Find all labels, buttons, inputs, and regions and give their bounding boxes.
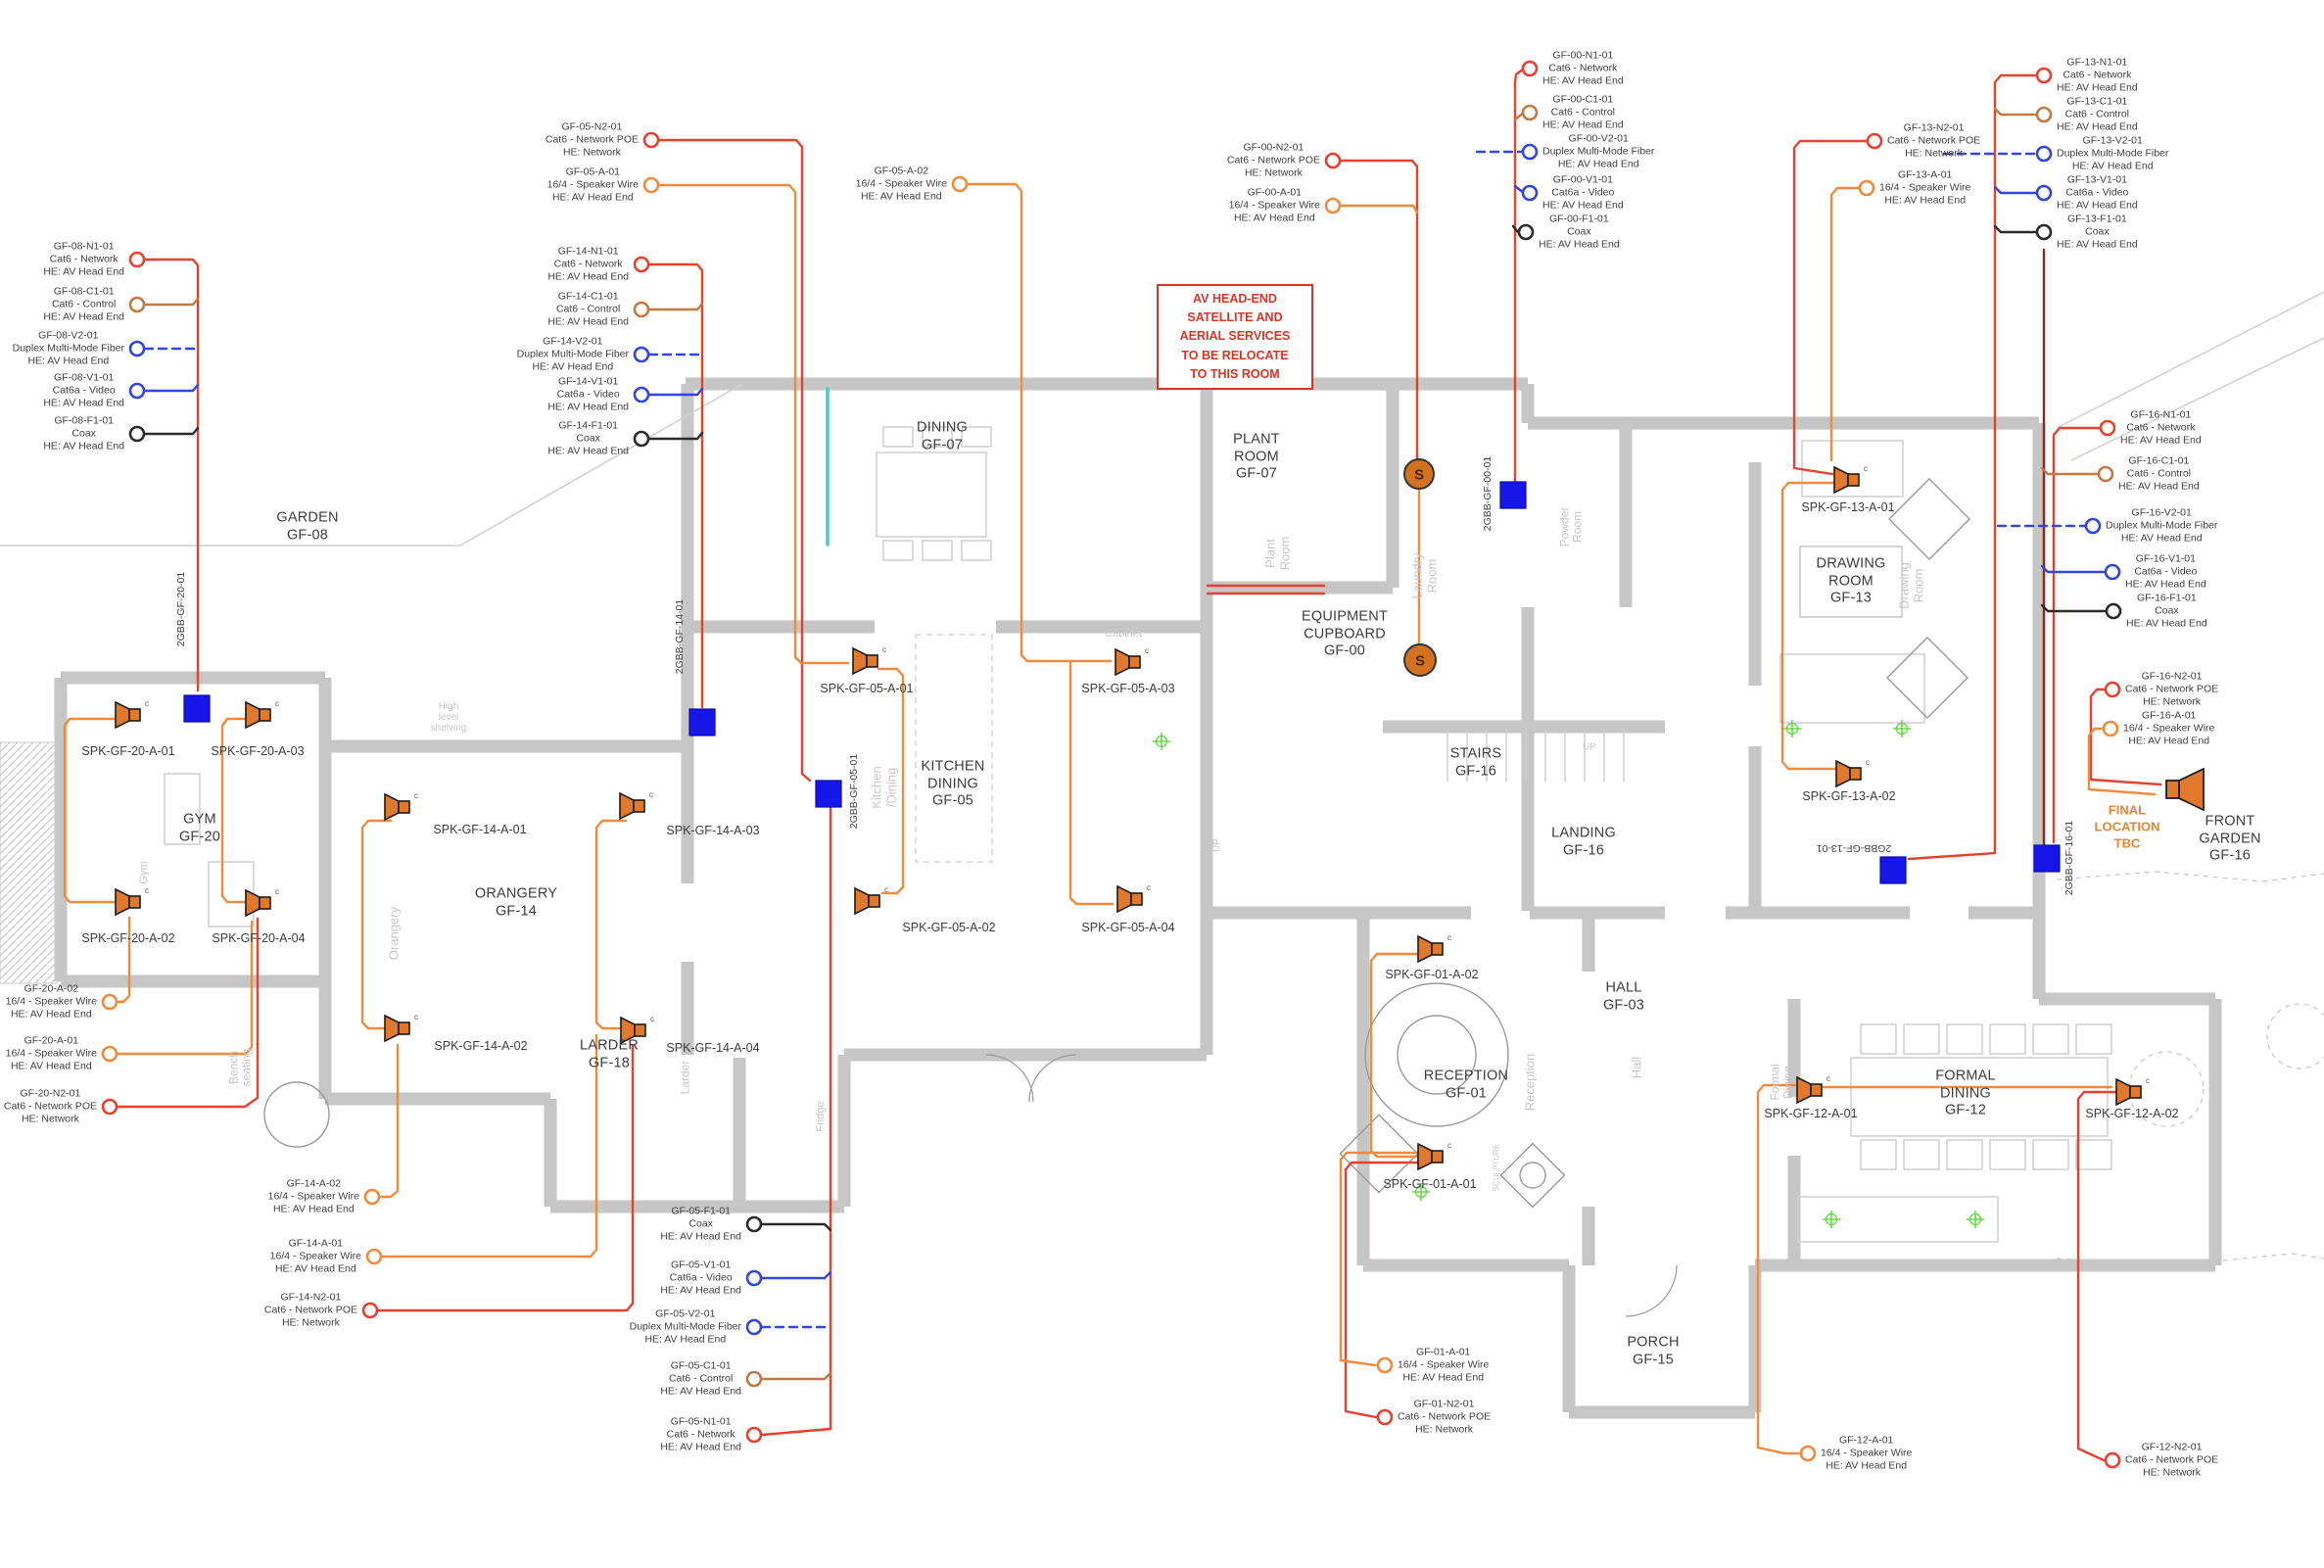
- final-location-note: FINAL LOCATION TBC: [2095, 803, 2160, 853]
- callout-id-text: GF-13-N1-01: [2057, 56, 2138, 69]
- callout-id-text: GF-16-A-01: [2123, 709, 2214, 722]
- callout-he-text: HE: Network: [1227, 167, 1320, 180]
- cable-callout: GF-05-N1-01Cat6 - NetworkHE: AV Head End: [660, 1415, 741, 1453]
- callout-id-text: GF-14-N2-01: [264, 1291, 357, 1304]
- callout-type-text: Cat6 - Control: [43, 298, 124, 310]
- callout-type-text: 16/4 - Speaker Wire: [1821, 1447, 1912, 1459]
- callout-he-text: HE: AV Head End: [1879, 195, 1970, 208]
- room-label: EQUIPMENT CUPBOARD GF-00: [1302, 608, 1388, 660]
- callout-he-text: HE: AV Head End: [1398, 1372, 1489, 1385]
- room-annotation-gray: Plant Room: [1263, 537, 1292, 571]
- room-label: FRONT GARDEN GF-16: [2199, 813, 2260, 865]
- speaker-label: SPK-GF-12-A-01: [1764, 1107, 1857, 1120]
- room-annotation-gray: SCULPTURE: [1494, 1144, 1502, 1191]
- room-annotation-gray: Formal Dining: [1770, 1064, 1796, 1100]
- speaker-label: SPK-GF-14-A-01: [433, 823, 526, 836]
- cable-callout: GF-00-V2-01Duplex Multi-Mode FiberHE: AV…: [1542, 132, 1654, 170]
- room-annotation-gray: Powder Room: [1559, 507, 1586, 547]
- callout-type-text: 16/4 - Speaker Wire: [547, 178, 639, 191]
- callout-type-text: Cat6 - Control: [2118, 467, 2200, 480]
- callout-he-text: HE: Network: [1887, 148, 1980, 161]
- callout-type-text: Cat6 - Control: [2057, 108, 2138, 120]
- room-label: RECEPTION GF-01: [1424, 1068, 1508, 1102]
- room-annotation-gray: Hall: [1631, 1057, 1645, 1078]
- callout-id-text: GF-05-V1-01: [660, 1259, 741, 1271]
- callout-he-text: HE: Network: [2125, 696, 2218, 709]
- callout-he-text: HE: AV Head End: [1542, 159, 1654, 171]
- room-annotation-gray: Gym: [138, 861, 150, 883]
- callout-he-text: HE: AV Head End: [2118, 481, 2200, 494]
- callout-he-text: HE: AV Head End: [2123, 736, 2214, 748]
- cable-callout: GF-13-F1-01CoaxHE: AV Head End: [2057, 213, 2138, 251]
- callout-id-text: GF-13-C1-01: [2057, 95, 2138, 108]
- cable-callout: GF-13-C1-01Cat6 - ControlHE: AV Head End: [2057, 95, 2138, 133]
- cable-callout: GF-14-F1-01CoaxHE: AV Head End: [547, 419, 629, 457]
- callout-id-text: GF-14-A-01: [270, 1237, 361, 1250]
- callout-he-text: HE: AV Head End: [2125, 579, 2206, 592]
- callout-type-text: 16/4 - Speaker Wire: [6, 995, 97, 1008]
- cable-callout: GF-14-N1-01Cat6 - NetworkHE: AV Head End: [547, 245, 629, 283]
- callout-id-text: GF-00-N2-01: [1227, 141, 1320, 154]
- callout-id-text: GF-16-F1-01: [2126, 592, 2207, 604]
- cable-callout: GF-05-V2-01Duplex Multi-Mode FiberHE: AV…: [630, 1307, 741, 1346]
- callout-he-text: HE: AV Head End: [2057, 239, 2138, 252]
- room-label: DRAWING ROOM GF-13: [1800, 546, 1903, 617]
- cable-callout: GF-16-F1-01CoaxHE: AV Head End: [2126, 592, 2207, 630]
- callout-type-text: Cat6a - Video: [1542, 186, 1624, 199]
- cable-callout: GF-01-N2-01Cat6 - Network POEHE: Network: [1398, 1398, 1491, 1436]
- wall-box-label: 2GBB-GF-05-01: [848, 754, 860, 829]
- callout-he-text: HE: AV Head End: [1821, 1460, 1912, 1473]
- callout-id-text: GF-08-V1-01: [43, 371, 124, 384]
- speaker-label: SPK-GF-05-A-03: [1081, 682, 1174, 695]
- callout-he-text: HE: AV Head End: [2057, 121, 2138, 134]
- callout-he-text: HE: AV Head End: [547, 271, 629, 284]
- callout-type-text: Cat6 - Network POE: [4, 1100, 97, 1113]
- speaker-label: SPK-GF-13-A-02: [1802, 789, 1895, 803]
- callout-he-text: HE: AV Head End: [268, 1204, 359, 1216]
- callout-he-text: HE: Network: [545, 147, 639, 160]
- cable-callout: GF-20-A-0216/4 - Speaker WireHE: AV Head…: [6, 982, 97, 1021]
- callout-type-text: Cat6 - Network: [660, 1428, 741, 1441]
- callout-he-text: HE: AV Head End: [43, 311, 124, 324]
- floor-plan-labels-layer: GARDEN GF-08GYM GF-20ORANGERY GF-14DININ…: [0, 0, 2324, 1568]
- callout-type-text: 16/4 - Speaker Wire: [1229, 199, 1320, 212]
- room-label: LANDING GF-16: [1551, 825, 1616, 859]
- cable-callout: GF-20-N2-01Cat6 - Network POEHE: Network: [4, 1087, 97, 1125]
- cable-callout: GF-14-N2-01Cat6 - Network POEHE: Network: [264, 1291, 357, 1329]
- speaker-label: SPK-GF-05-A-01: [820, 682, 913, 695]
- cable-callout: GF-08-V1-01Cat6a - VideoHE: AV Head End: [43, 371, 124, 409]
- callout-id-text: GF-13-N2-01: [1887, 121, 1980, 134]
- callout-id-text: GF-13-A-01: [1879, 168, 1970, 181]
- speaker-label: SPK-GF-01-A-02: [1385, 968, 1478, 981]
- callout-he-text: HE: AV Head End: [6, 1009, 97, 1022]
- speaker-label: SPK-GF-20-A-01: [81, 744, 174, 758]
- callout-he-text: HE: AV Head End: [856, 191, 947, 204]
- cable-callout: GF-01-A-0116/4 - Speaker WireHE: AV Head…: [1398, 1346, 1489, 1384]
- callout-type-text: Coax: [547, 432, 629, 445]
- callout-id-text: GF-16-V2-01: [2106, 506, 2217, 519]
- speaker-label: SPK-GF-14-A-04: [666, 1041, 759, 1055]
- cable-callout: GF-00-A-0116/4 - Speaker WireHE: AV Head…: [1229, 186, 1320, 224]
- callout-type-text: Cat6a - Video: [2057, 186, 2138, 199]
- cable-callout: GF-14-A-0216/4 - Speaker WireHE: AV Head…: [268, 1177, 359, 1215]
- wall-box-label: 2GBB-GF-14-01: [674, 599, 686, 674]
- callout-he-text: HE: AV Head End: [1542, 200, 1624, 213]
- speaker-label: SPK-GF-20-A-04: [212, 931, 305, 945]
- callout-type-text: Duplex Multi-Mode Fiber: [2057, 147, 2168, 160]
- callout-id-text: GF-13-V2-01: [2057, 134, 2168, 147]
- cable-callout: GF-13-N1-01Cat6 - NetworkHE: AV Head End: [2057, 56, 2138, 94]
- callout-he-text: HE: AV Head End: [270, 1263, 361, 1276]
- callout-type-text: Duplex Multi-Mode Fiber: [2106, 519, 2217, 532]
- speaker-label: SPK-GF-14-A-02: [434, 1039, 527, 1053]
- cable-callout: GF-08-F1-01CoaxHE: AV Head End: [43, 414, 124, 452]
- room-label: GYM GF-20: [179, 811, 220, 845]
- callout-type-text: Cat6 - Network POE: [2125, 1453, 2218, 1466]
- callout-he-text: HE: AV Head End: [547, 402, 629, 414]
- cable-callout: GF-13-N2-01Cat6 - Network POEHE: Network: [1887, 121, 1980, 160]
- callout-type-text: Duplex Multi-Mode Fiber: [630, 1320, 741, 1333]
- cable-callout: GF-12-N2-01Cat6 - Network POEHE: Network: [2125, 1441, 2218, 1479]
- callout-id-text: GF-16-V1-01: [2125, 552, 2206, 565]
- callout-he-text: HE: AV Head End: [43, 266, 124, 279]
- cable-callout: GF-08-V2-01Duplex Multi-Mode FiberHE: AV…: [13, 329, 124, 367]
- callout-id-text: GF-16-N1-01: [2120, 408, 2202, 421]
- speaker-label: SPK-GF-05-A-02: [902, 921, 995, 934]
- callout-type-text: Cat6 - Network: [1542, 62, 1624, 74]
- room-label: DINING GF-07: [917, 419, 968, 453]
- cable-callout: GF-00-N1-01Cat6 - NetworkHE: AV Head End: [1542, 49, 1624, 87]
- callout-he-text: HE: AV Head End: [547, 192, 639, 205]
- callout-he-text: HE: AV Head End: [13, 356, 124, 368]
- callout-he-text: HE: AV Head End: [1539, 239, 1620, 252]
- callout-id-text: GF-14-A-02: [268, 1177, 359, 1190]
- cable-callout: GF-13-V1-01Cat6a - VideoHE: AV Head End: [2057, 173, 2138, 212]
- callout-id-text: GF-13-F1-01: [2057, 213, 2138, 225]
- callout-id-text: GF-08-C1-01: [43, 285, 124, 298]
- room-label: STAIRS GF-16: [1450, 745, 1502, 780]
- callout-id-text: GF-20-A-02: [6, 982, 97, 995]
- callout-id-text: GF-00-V1-01: [1542, 173, 1624, 186]
- cable-callout: GF-00-C1-01Cat6 - ControlHE: AV Head End: [1542, 93, 1624, 131]
- callout-he-text: HE: AV Head End: [43, 441, 124, 453]
- callout-he-text: HE: AV Head End: [2057, 82, 2138, 95]
- callout-id-text: GF-05-A-01: [547, 166, 639, 178]
- cable-callout: GF-05-A-0116/4 - Speaker WireHE: AV Head…: [547, 166, 639, 204]
- cable-callout: GF-00-F1-01CoaxHE: AV Head End: [1539, 213, 1620, 251]
- callout-he-text: HE: AV Head End: [6, 1061, 97, 1073]
- room-annotation-gray: Orangery: [388, 907, 403, 960]
- callout-he-text: HE: AV Head End: [2120, 435, 2202, 448]
- callout-he-text: HE: AV Head End: [660, 1442, 741, 1454]
- callout-he-text: HE: AV Head End: [1542, 75, 1624, 88]
- callout-id-text: GF-20-N2-01: [4, 1087, 97, 1100]
- cable-callout: GF-14-V2-01Duplex Multi-Mode FiberHE: AV…: [517, 335, 629, 373]
- callout-type-text: Cat6 - Network: [547, 258, 629, 270]
- callout-type-text: 16/4 - Speaker Wire: [268, 1190, 359, 1203]
- callout-he-text: HE: AV Head End: [660, 1285, 741, 1298]
- room-annotation-gray: UP: [1583, 741, 1596, 752]
- cable-callout: GF-14-A-0116/4 - Speaker WireHE: AV Head…: [270, 1237, 361, 1275]
- callout-id-text: GF-08-F1-01: [43, 414, 124, 427]
- wall-box-label: 2GBB-GF-13-01: [1817, 842, 1891, 854]
- callout-id-text: GF-05-N1-01: [660, 1415, 741, 1428]
- room-annotation-gray: High level shelving: [431, 701, 467, 735]
- cable-callout: GF-05-A-0216/4 - Speaker WireHE: AV Head…: [856, 165, 947, 203]
- callout-id-text: GF-14-C1-01: [547, 290, 629, 303]
- cable-callout: GF-16-N2-01Cat6 - Network POEHE: Network: [2125, 670, 2218, 708]
- callout-he-text: HE: AV Head End: [1229, 213, 1320, 225]
- cable-callout: GF-16-A-0116/4 - Speaker WireHE: AV Head…: [2123, 709, 2214, 747]
- callout-type-text: Coax: [43, 427, 124, 440]
- cable-callout: GF-12-A-0116/4 - Speaker WireHE: AV Head…: [1821, 1434, 1912, 1472]
- relocation-note: AV HEAD-END SATELLITE AND AERIAL SERVICE…: [1157, 284, 1313, 390]
- cable-callout: GF-13-V2-01Duplex Multi-Mode FiberHE: AV…: [2057, 134, 2168, 172]
- wall-box-label: 2GBB-GF-16-01: [2063, 821, 2075, 895]
- speaker-label: SPK-GF-14-A-03: [666, 824, 759, 837]
- callout-id-text: GF-05-V2-01: [630, 1307, 741, 1320]
- callout-he-text: HE: AV Head End: [2057, 200, 2138, 213]
- callout-type-text: Cat6 - Control: [547, 303, 629, 315]
- callout-type-text: Cat6 - Network POE: [545, 133, 639, 146]
- callout-type-text: Cat6a - Video: [660, 1271, 741, 1284]
- callout-id-text: GF-00-C1-01: [1542, 93, 1624, 106]
- cable-callout: GF-20-A-0116/4 - Speaker WireHE: AV Head…: [6, 1034, 97, 1072]
- callout-he-text: HE: AV Head End: [547, 446, 629, 458]
- wall-box-label: 2GBB-GF-00-01: [1482, 456, 1494, 531]
- callout-type-text: Cat6 - Control: [660, 1372, 741, 1385]
- callout-id-text: GF-16-N2-01: [2125, 670, 2218, 683]
- floor-plan-canvas: SScccccccccccccccccc GARDEN GF-08GYM GF-…: [0, 0, 2324, 1568]
- callout-type-text: 16/4 - Speaker Wire: [1879, 181, 1970, 194]
- callout-id-text: GF-16-C1-01: [2118, 454, 2200, 467]
- callout-id-text: GF-01-N2-01: [1398, 1398, 1491, 1410]
- callout-type-text: 16/4 - Speaker Wire: [6, 1047, 97, 1060]
- callout-id-text: GF-05-F1-01: [660, 1205, 741, 1217]
- callout-id-text: GF-12-A-01: [1821, 1434, 1912, 1447]
- callout-he-text: HE: AV Head End: [1542, 119, 1624, 132]
- callout-he-text: HE: AV Head End: [2126, 618, 2207, 631]
- room-annotation-gray: Reception: [1524, 1054, 1539, 1112]
- callout-he-text: HE: AV Head End: [660, 1231, 741, 1244]
- callout-id-text: GF-05-C1-01: [660, 1359, 741, 1372]
- room-label: ORANGERY GF-14: [475, 885, 557, 920]
- callout-he-text: HE: AV Head End: [547, 316, 629, 329]
- speaker-label: SPK-GF-13-A-01: [1801, 500, 1894, 514]
- callout-id-text: GF-00-A-01: [1229, 186, 1320, 199]
- callout-type-text: Cat6a - Video: [43, 384, 124, 397]
- callout-type-text: Coax: [2126, 604, 2207, 617]
- callout-id-text: GF-14-V2-01: [517, 335, 629, 348]
- room-label: KITCHEN DINING GF-05: [921, 758, 984, 810]
- room-annotation-gray: Bench seating: [228, 1049, 255, 1087]
- speaker-label: SPK-GF-05-A-04: [1081, 921, 1174, 934]
- room-annotation-gray: Kitchen /Dining: [870, 766, 898, 808]
- cable-callout: GF-00-N2-01Cat6 - Network POEHE: Network: [1227, 141, 1320, 179]
- room-label: PORCH GF-15: [1627, 1334, 1679, 1368]
- cable-callout: GF-05-N2-01Cat6 - Network POEHE: Network: [545, 120, 639, 159]
- callout-he-text: HE: Network: [264, 1317, 357, 1330]
- room-label: HALL GF-03: [1603, 979, 1644, 1014]
- room-annotation-gray: Cabinet: [1105, 628, 1142, 640]
- cable-callout: GF-13-A-0116/4 - Speaker WireHE: AV Head…: [1879, 168, 1970, 207]
- cable-callout: GF-14-C1-01Cat6 - ControlHE: AV Head End: [547, 290, 629, 328]
- room-label: LARDER GF-18: [580, 1037, 639, 1071]
- speaker-label: SPK-GF-12-A-02: [2085, 1107, 2178, 1120]
- callout-id-text: GF-01-A-01: [1398, 1346, 1489, 1358]
- cable-callout: GF-05-V1-01Cat6a - VideoHE: AV Head End: [660, 1259, 741, 1297]
- callout-id-text: GF-00-V2-01: [1542, 132, 1654, 145]
- callout-type-text: Cat6 - Network POE: [264, 1304, 357, 1316]
- callout-he-text: HE: AV Head End: [630, 1334, 741, 1347]
- callout-type-text: Coax: [1539, 225, 1620, 238]
- callout-he-text: HE: AV Head End: [2106, 533, 2217, 546]
- callout-type-text: Coax: [660, 1217, 741, 1230]
- callout-he-text: HE: AV Head End: [660, 1386, 741, 1399]
- callout-type-text: Cat6a - Video: [2125, 565, 2206, 578]
- callout-type-text: Coax: [2057, 225, 2138, 238]
- speaker-label: SPK-GF-20-A-03: [211, 744, 304, 758]
- cable-callout: GF-00-V1-01Cat6a - VideoHE: AV Head End: [1542, 173, 1624, 212]
- callout-type-text: Cat6 - Network POE: [1398, 1410, 1491, 1423]
- callout-he-text: HE: Network: [2125, 1467, 2218, 1480]
- room-label: GARDEN GF-08: [276, 509, 338, 544]
- room-annotation-gray: Drawing Room: [1897, 562, 1925, 609]
- speaker-label: SPK-GF-01-A-01: [1383, 1177, 1476, 1191]
- cable-callout: GF-16-C1-01Cat6 - ControlHE: AV Head End: [2118, 454, 2200, 493]
- room-annotation-gray: Fridge: [815, 1101, 827, 1131]
- callout-id-text: GF-08-V2-01: [13, 329, 124, 342]
- callout-type-text: Cat6a - Video: [547, 388, 629, 401]
- callout-id-text: GF-00-F1-01: [1539, 213, 1620, 225]
- callout-type-text: Cat6 - Network POE: [1227, 154, 1320, 166]
- cable-callout: GF-05-F1-01CoaxHE: AV Head End: [660, 1205, 741, 1243]
- callout-id-text: GF-14-V1-01: [547, 375, 629, 388]
- callout-type-text: 16/4 - Speaker Wire: [856, 177, 947, 190]
- callout-id-text: GF-20-A-01: [6, 1034, 97, 1047]
- callout-he-text: HE: Network: [4, 1114, 97, 1126]
- cable-callout: GF-08-C1-01Cat6 - ControlHE: AV Head End: [43, 285, 124, 323]
- callout-id-text: GF-12-N2-01: [2125, 1441, 2218, 1453]
- callout-he-text: HE: AV Head End: [517, 361, 629, 374]
- room-label: PLANT ROOM GF-07: [1233, 431, 1280, 483]
- room-annotation-gray: Larder: [679, 1061, 691, 1095]
- callout-type-text: 16/4 - Speaker Wire: [1398, 1358, 1489, 1371]
- callout-type-text: Duplex Multi-Mode Fiber: [13, 342, 124, 355]
- callout-he-text: HE: AV Head End: [43, 398, 124, 410]
- callout-type-text: Duplex Multi-Mode Fiber: [1542, 145, 1654, 158]
- callout-id-text: GF-00-N1-01: [1542, 49, 1624, 62]
- callout-id-text: GF-05-N2-01: [545, 120, 639, 133]
- callout-type-text: Cat6 - Network: [43, 253, 124, 265]
- callout-type-text: Cat6 - Network POE: [1887, 134, 1980, 147]
- cable-callout: GF-16-V2-01Duplex Multi-Mode FiberHE: AV…: [2106, 506, 2217, 545]
- cable-callout: GF-16-V1-01Cat6a - VideoHE: AV Head End: [2125, 552, 2206, 591]
- callout-type-text: Duplex Multi-Mode Fiber: [517, 348, 629, 360]
- callout-type-text: Cat6 - Control: [1542, 106, 1624, 119]
- callout-id-text: GF-13-V1-01: [2057, 173, 2138, 186]
- callout-he-text: HE: AV Head End: [2057, 161, 2168, 173]
- speaker-label: SPK-GF-20-A-02: [81, 931, 174, 945]
- room-annotation-gray: UP: [1211, 838, 1222, 852]
- callout-id-text: GF-08-N1-01: [43, 240, 124, 253]
- callout-id-text: GF-14-F1-01: [547, 419, 629, 432]
- wall-box-label: 2GBB-GF-20-01: [175, 572, 187, 646]
- callout-type-text: 16/4 - Speaker Wire: [270, 1250, 361, 1262]
- callout-type-text: Cat6 - Network POE: [2125, 683, 2218, 695]
- cable-callout: GF-08-N1-01Cat6 - NetworkHE: AV Head End: [43, 240, 124, 278]
- room-annotation-gray: Laundry Room: [1410, 553, 1439, 599]
- cable-callout: GF-16-N1-01Cat6 - NetworkHE: AV Head End: [2120, 408, 2202, 447]
- callout-type-text: Cat6 - Network: [2120, 421, 2202, 434]
- cable-callout: GF-14-V1-01Cat6a - VideoHE: AV Head End: [547, 375, 629, 413]
- callout-id-text: GF-05-A-02: [856, 165, 947, 177]
- room-label: FORMAL DINING GF-12: [1935, 1068, 1996, 1119]
- cable-callout: GF-05-C1-01Cat6 - ControlHE: AV Head End: [660, 1359, 741, 1398]
- callout-id-text: GF-14-N1-01: [547, 245, 629, 258]
- callout-type-text: 16/4 - Speaker Wire: [2123, 722, 2214, 735]
- callout-he-text: HE: Network: [1398, 1424, 1491, 1437]
- callout-type-text: Cat6 - Network: [2057, 69, 2138, 81]
